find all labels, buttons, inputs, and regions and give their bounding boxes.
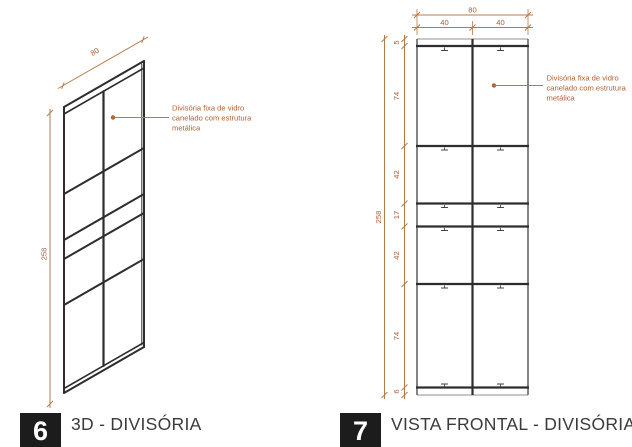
chain-label-5: 5 [392,40,401,44]
dim-258-label: 258 [374,211,383,224]
3d-dim-height-label: 258 [40,248,49,261]
view-number-badge-3d: 6 [20,413,61,447]
chain-label-74b: 74 [392,332,401,340]
dim-80-label: 80 [468,6,476,15]
dim-40-right-label: 40 [496,18,504,27]
technical-drawing-sheet: 80 258 Divisória fixa de vidro canelado … [0,0,632,447]
chain-label-42: 42 [392,170,401,178]
chain-label-17: 17 [392,211,401,219]
frontal-annotation-text-line3: metálica [547,94,576,103]
view-number-badge-frontal: 7 [340,413,381,447]
view-title-frontal: VISTA FRONTAL - DIVISÓRIA [391,414,632,435]
drawing-canvas: 80 258 Divisória fixa de vidro canelado … [0,0,632,447]
frontal-annotation-text-line2: canelado com estrutura [547,84,627,93]
frontal-annotation-text-line1: Divisória fixa de vidro [547,74,619,83]
view-title-3d: 3D - DIVISÓRIA [71,414,202,435]
3d-dim-width: 80 [58,36,148,88]
view-number-3d: 6 [33,416,48,447]
3d-annotation-text-line1: Divisória fixa de vidro [172,104,244,113]
view-number-frontal: 7 [353,416,368,447]
chain-label-74: 74 [392,92,401,100]
3d-annotation-text-line2: canelado com estrutura [172,114,252,123]
3d-annotation-text-line3: metálica [172,124,201,133]
frontal-dim-top: 80 40 40 [412,6,533,36]
frontal-dim-chain: 5 74 42 17 42 74 6 [392,35,408,399]
chain-label-42b: 42 [392,251,401,259]
dim-40-left-label: 40 [440,18,448,27]
3d-dim-width-label: 80 [89,46,101,58]
3d-view-drawing [64,61,144,393]
chain-label-6: 6 [392,389,401,393]
3d-dim-width-line [58,37,148,89]
frontal-annotation: Divisória fixa de vidro canelado com est… [492,74,627,103]
3d-dim-height: 258 [40,109,54,408]
frontal-dim-overall: 258 [374,35,388,399]
frontal-view-drawing [416,39,529,395]
3d-annotation: Divisória fixa de vidro canelado com est… [111,104,252,133]
